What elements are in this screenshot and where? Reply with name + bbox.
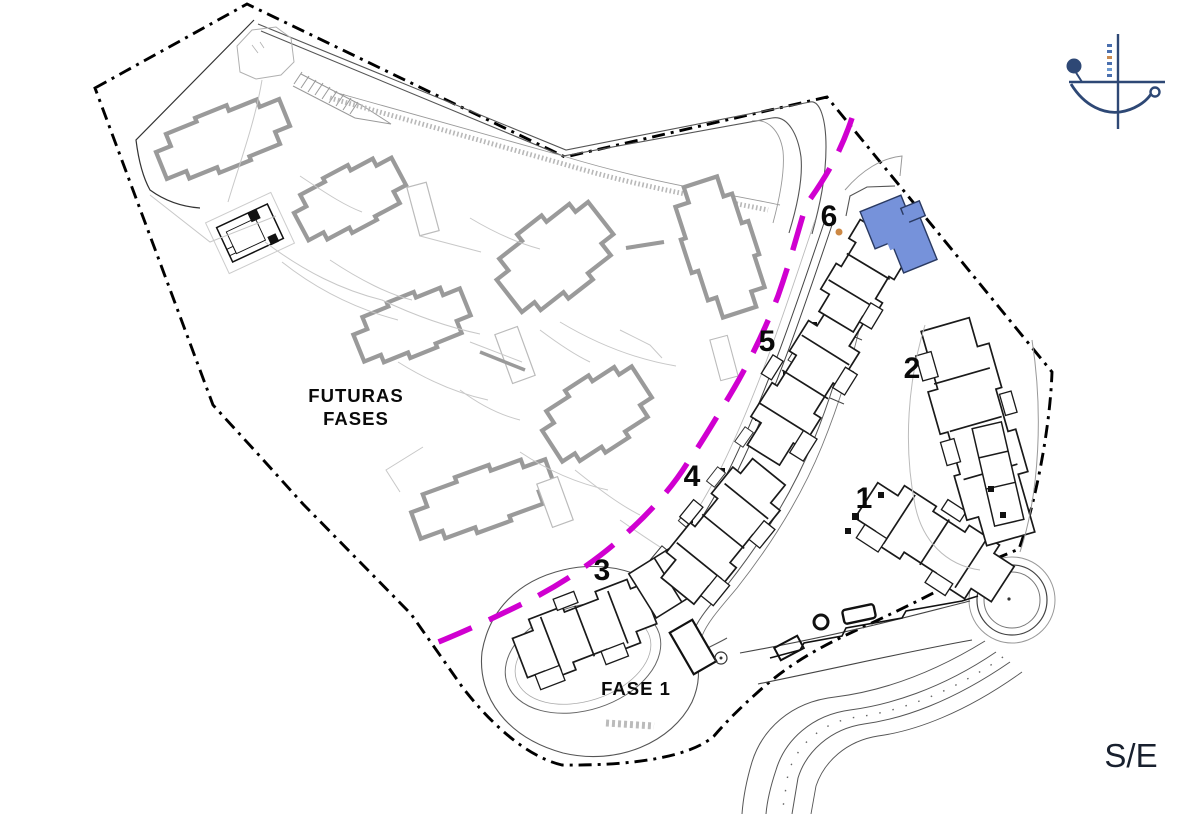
svg-text:2: 2 [904, 352, 921, 385]
svg-text:S/E: S/E [1104, 737, 1157, 774]
svg-text:FUTURAS: FUTURAS [308, 385, 403, 406]
svg-text:FASES: FASES [323, 408, 389, 429]
svg-text:5: 5 [759, 325, 776, 358]
svg-text:FASE 1: FASE 1 [601, 678, 671, 699]
svg-text:4: 4 [684, 460, 701, 493]
svg-text:1: 1 [856, 482, 873, 515]
svg-text:3: 3 [594, 554, 611, 587]
svg-text:6: 6 [821, 200, 838, 233]
